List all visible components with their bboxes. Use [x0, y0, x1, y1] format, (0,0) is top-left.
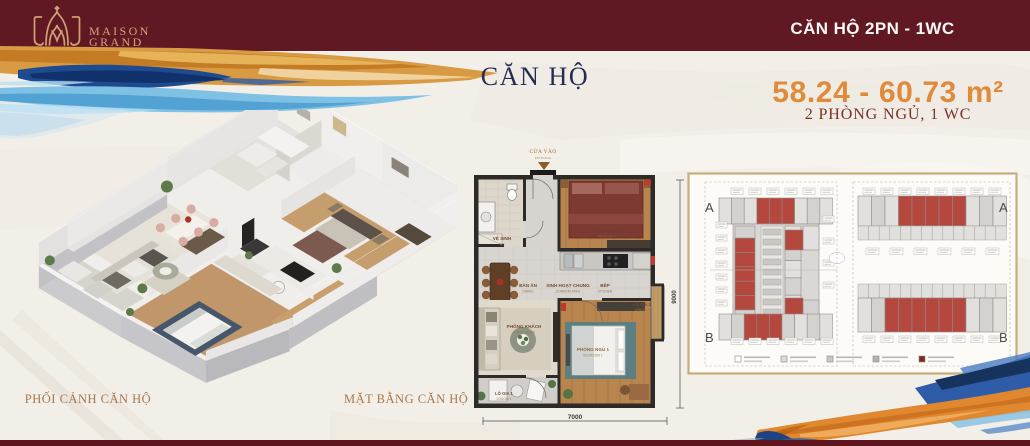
svg-text:A: A	[705, 200, 714, 215]
svg-text:LÔ GIA 1: LÔ GIA 1	[495, 391, 513, 396]
svg-text:CỬA VÀO: CỬA VÀO	[529, 147, 556, 155]
svg-text:BÀN ĂN: BÀN ĂN	[519, 282, 538, 288]
svg-text:BẾP: BẾP	[600, 282, 609, 288]
svg-text:KITCHEN: KITCHEN	[598, 290, 613, 294]
svg-text:PHÒNG NGỦ 1: PHÒNG NGỦ 1	[577, 345, 610, 352]
svg-text:COMMON AREA: COMMON AREA	[556, 290, 581, 294]
svg-text:PHÒNG KHÁCH: PHÒNG KHÁCH	[507, 322, 542, 329]
svg-text:LOGGIA 2: LOGGIA 2	[635, 308, 650, 312]
svg-text:SINH HOẠT CHUNG: SINH HOẠT CHUNG	[546, 283, 590, 288]
svg-text:PHÒNG NGỦ 2: PHÒNG NGỦ 2	[591, 226, 624, 233]
svg-text:A: A	[999, 200, 1008, 215]
svg-text:LÔ GIA 2: LÔ GIA 2	[633, 302, 651, 307]
svg-text:WC: WC	[499, 243, 505, 247]
svg-text:BEDROOM 1: BEDROOM 1	[583, 354, 602, 358]
svg-text:7000: 7000	[568, 414, 583, 421]
svg-text:LOGGIA 1: LOGGIA 1	[497, 397, 512, 401]
svg-text:LIVING ROOM: LIVING ROOM	[513, 331, 535, 335]
svg-text:B: B	[705, 330, 714, 345]
svg-text:BEDROOM 2: BEDROOM 2	[597, 235, 616, 239]
svg-text:ENTRANCE: ENTRANCE	[535, 156, 552, 160]
svg-text:9000: 9000	[672, 290, 678, 304]
svg-text:B: B	[999, 330, 1008, 345]
svg-text:DINING: DINING	[522, 290, 534, 294]
svg-text:VỆ SINH: VỆ SINH	[493, 234, 512, 241]
